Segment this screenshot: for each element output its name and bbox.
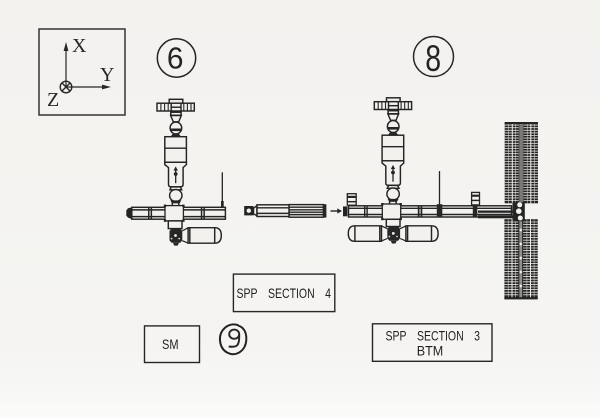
svg-text:8: 8 xyxy=(425,37,441,78)
svg-text:SM: SM xyxy=(162,337,179,352)
svg-text:Y: Y xyxy=(100,64,114,86)
svg-text:X: X xyxy=(72,35,87,57)
svg-text:6: 6 xyxy=(167,42,184,75)
svg-text:Z: Z xyxy=(47,89,59,111)
svg-text:BTM: BTM xyxy=(417,344,444,359)
svg-text:SPP SECTION 4: SPP SECTION 4 xyxy=(237,286,332,301)
svg-text:SPP SECTION 3: SPP SECTION 3 xyxy=(386,329,481,344)
